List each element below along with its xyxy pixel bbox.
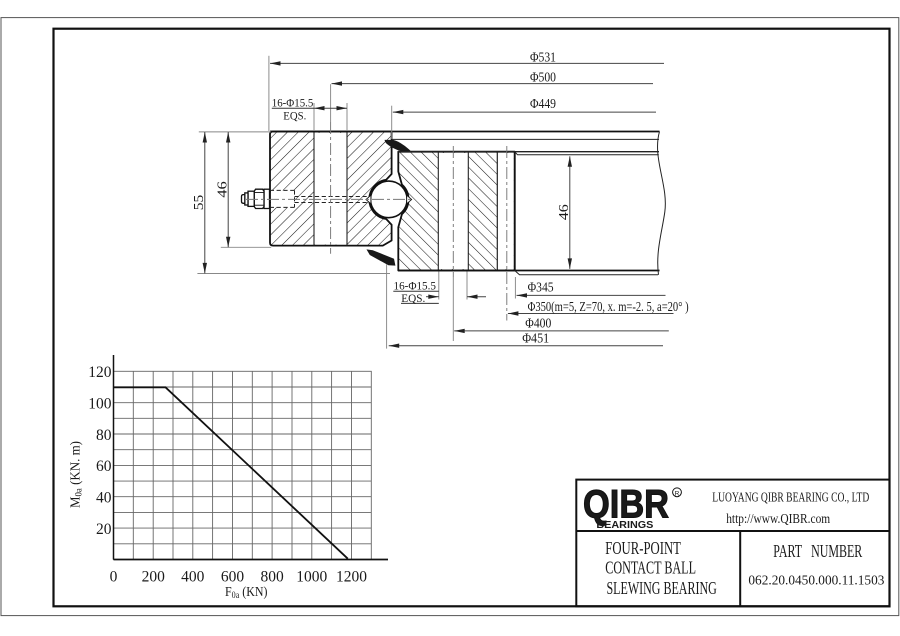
svg-text:0: 0	[110, 569, 118, 586]
svg-text:062.20.0450.000.11.1503: 062.20.0450.000.11.1503	[748, 573, 884, 588]
svg-text:Φ350(m=5, Z=70, x. m=-2. 5, a=: Φ350(m=5, Z=70, x. m=-2. 5, a=20° )	[528, 300, 689, 315]
svg-text:R: R	[675, 491, 680, 498]
svg-text:EQS.: EQS.	[401, 291, 425, 305]
svg-text:EQS.: EQS.	[283, 109, 306, 123]
svg-text:200: 200	[142, 569, 166, 586]
svg-text:20: 20	[96, 521, 112, 538]
svg-text:46: 46	[215, 181, 230, 198]
svg-text:55: 55	[192, 195, 207, 211]
svg-text:600: 600	[221, 569, 245, 586]
svg-text:46: 46	[557, 204, 572, 220]
svg-text:80: 80	[96, 427, 112, 444]
svg-text:http://www.QIBR.com: http://www.QIBR.com	[726, 512, 830, 527]
svg-text:M0a (KN. m): M0a (KN. m)	[69, 441, 85, 508]
svg-text:16-Φ15.5: 16-Φ15.5	[272, 96, 314, 110]
svg-text:Φ345: Φ345	[528, 281, 554, 296]
svg-text:60: 60	[96, 458, 112, 475]
svg-text:400: 400	[181, 569, 205, 586]
svg-text:Φ500: Φ500	[530, 71, 556, 86]
svg-text:Φ400: Φ400	[525, 317, 551, 332]
svg-text:800: 800	[260, 569, 284, 586]
svg-text:120: 120	[88, 364, 112, 381]
svg-text:Φ449: Φ449	[530, 97, 556, 112]
svg-text:1000: 1000	[296, 569, 327, 586]
svg-text:F0a (KN): F0a (KN)	[225, 585, 268, 601]
svg-text:40: 40	[96, 490, 112, 507]
svg-text:100: 100	[88, 396, 112, 413]
svg-text:CONTACT BALL: CONTACT BALL	[605, 557, 696, 577]
svg-text:Φ451: Φ451	[522, 331, 549, 346]
svg-text:SLEWING BEARING: SLEWING BEARING	[607, 578, 718, 598]
svg-text:PART NUMBER: PART NUMBER	[773, 541, 862, 561]
svg-text:FOUR-POINT: FOUR-POINT	[605, 538, 681, 558]
svg-text:1200: 1200	[336, 569, 367, 586]
svg-text:BEARINGS: BEARINGS	[596, 519, 653, 531]
svg-text:LUOYANG QIBR BEARING CO., LTD: LUOYANG QIBR BEARING CO., LTD	[712, 489, 869, 504]
svg-text:Φ531: Φ531	[530, 50, 556, 65]
